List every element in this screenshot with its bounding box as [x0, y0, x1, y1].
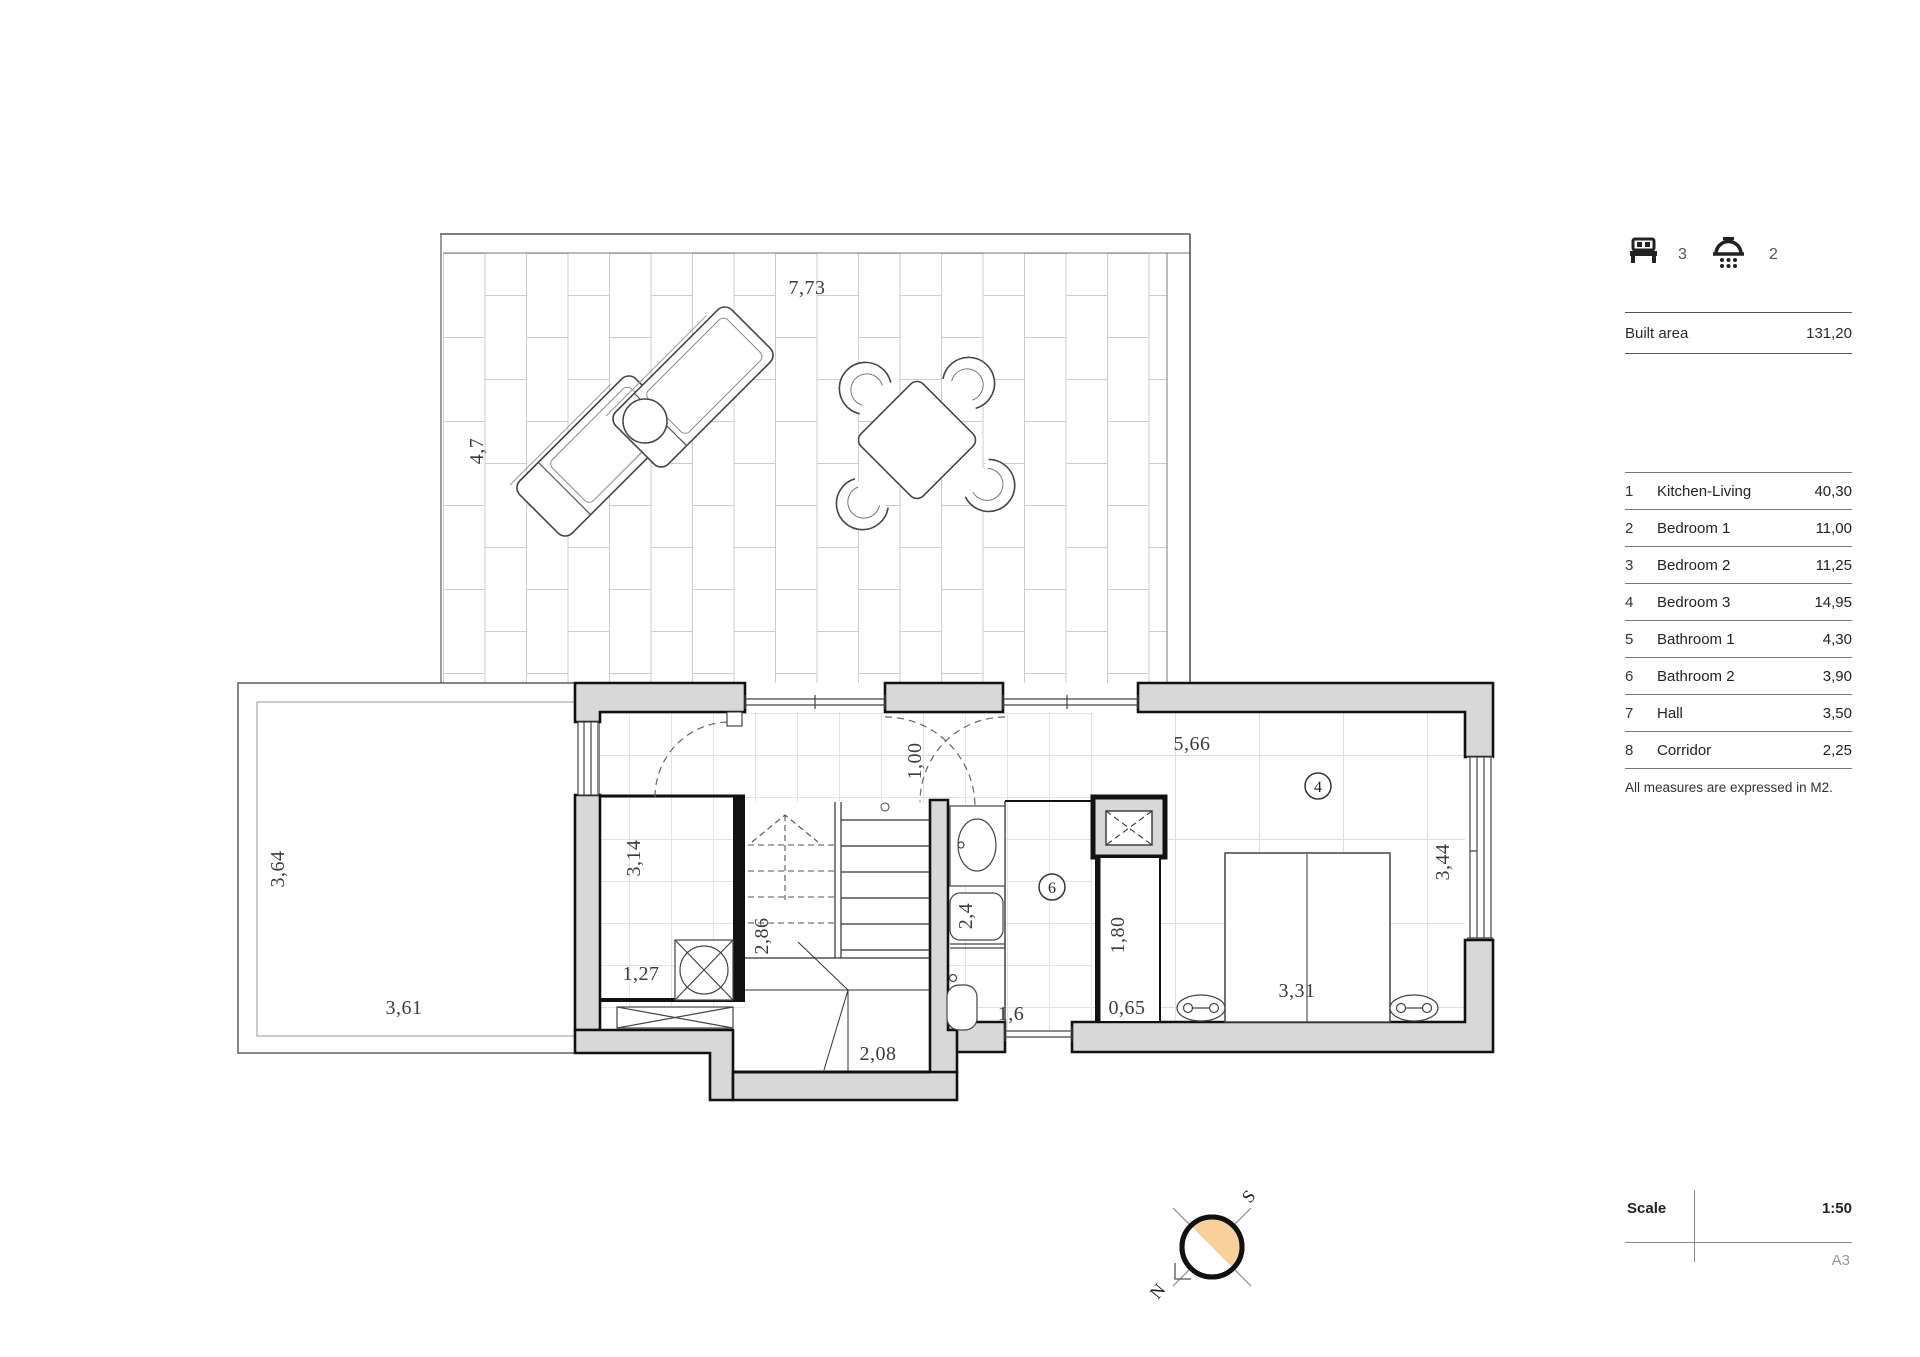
built-area-row: Built area 131,20 [1625, 312, 1852, 354]
wall-bottom-left [575, 1030, 733, 1100]
room-tag-bathroom2: 6 [1039, 874, 1065, 900]
svg-text:6: 6 [1048, 880, 1056, 897]
room-tag-bedroom3: 4 [1305, 773, 1331, 799]
wall-left [575, 795, 600, 1030]
scale-rule [1625, 1242, 1852, 1243]
sheet-size: A3 [1832, 1252, 1850, 1269]
wall-storage-right [733, 796, 745, 1002]
table-row: 3 Bedroom 2 11,25 [1625, 547, 1852, 584]
dim-storage-depth: 3,14 [623, 840, 645, 877]
wall-top-mid [885, 683, 1003, 712]
scale-label: Scale [1627, 1200, 1666, 1217]
table-row: 4 Bedroom 3 14,95 [1625, 584, 1852, 621]
dim-hall-door: 1,00 [904, 743, 926, 780]
toilet [947, 985, 977, 1030]
built-area-label: Built area [1625, 325, 1688, 342]
dim-wardrobe-depth: 0,65 [1109, 997, 1146, 1019]
units-note: All measures are expressed in M2. [1625, 780, 1833, 795]
door-hinge [881, 803, 889, 811]
wall-stair-bottom [733, 1072, 957, 1100]
svg-text:4: 4 [1314, 779, 1322, 796]
table-row: 7 Hall 3,50 [1625, 695, 1852, 732]
table-row: 2 Bedroom 1 11,00 [1625, 510, 1852, 547]
shower-count: 2 [1769, 246, 1778, 264]
dim-side-terrace-width: 3,61 [386, 997, 423, 1019]
dim-terrace-depth: 4,7 [466, 438, 488, 465]
dim-bath-fixture: 2,4 [955, 903, 977, 930]
scale-divider [1694, 1190, 1695, 1262]
bed-icon [1627, 236, 1661, 271]
compass-south-label: S [1238, 1186, 1260, 1207]
scale-block: Scale 1:50 A3 [1625, 1188, 1852, 1280]
dim-stair-flight: 2,86 [751, 918, 773, 955]
info-panel: 3 2 Built area 131,20 1 Kitchen-Living 4… [1625, 0, 1852, 1357]
toilet-flush [950, 975, 957, 982]
bed-count: 3 [1678, 246, 1687, 264]
table-row: 5 Bathroom 1 4,30 [1625, 621, 1852, 658]
dim-bedroom-width: 5,66 [1174, 733, 1211, 755]
nightstand [1390, 995, 1438, 1021]
dim-side-terrace-depth: 3,64 [267, 851, 289, 888]
dim-stair-landing: 2,08 [860, 1043, 897, 1065]
dim-storage-width: 1,27 [623, 963, 660, 985]
room-table: 1 Kitchen-Living 40,30 2 Bedroom 1 11,00… [1625, 472, 1852, 769]
table-row: 1 Kitchen-Living 40,30 [1625, 473, 1852, 510]
table-row: 6 Bathroom 2 3,90 [1625, 658, 1852, 695]
dim-terrace-width: 7,73 [789, 277, 826, 299]
dim-bedroom-depth: 3,44 [1432, 844, 1454, 881]
compass-north-label: N [1146, 1280, 1170, 1303]
nightstand [1177, 995, 1225, 1021]
dim-bed-width: 3,31 [1279, 980, 1316, 1002]
floor-plan-page: { "legend": { "beds_count": "3", "shower… [0, 0, 1920, 1357]
capacity-icons: 3 2 [1625, 236, 1852, 276]
side-table [623, 399, 667, 443]
built-area-value: 131,20 [1806, 325, 1852, 342]
door-hinge-bracket [727, 712, 742, 726]
compass: N S [1146, 1186, 1260, 1303]
shower-icon [1710, 236, 1746, 277]
dim-wardrobe-length: 1,80 [1107, 917, 1129, 954]
scale-value: 1:50 [1822, 1200, 1852, 1217]
floor-plan-drawing: 4 6 7,73 4,7 3,64 3,61 3,14 1,27 2,86 2,… [0, 0, 1540, 1357]
vent-shaft [1093, 797, 1165, 857]
sink-tap [958, 842, 964, 848]
shower-tray [675, 940, 733, 1000]
table-row: 8 Corridor 2,25 [1625, 732, 1852, 769]
dim-bathroom-width: 1,6 [998, 1003, 1025, 1025]
low-cabinet [617, 1007, 733, 1028]
